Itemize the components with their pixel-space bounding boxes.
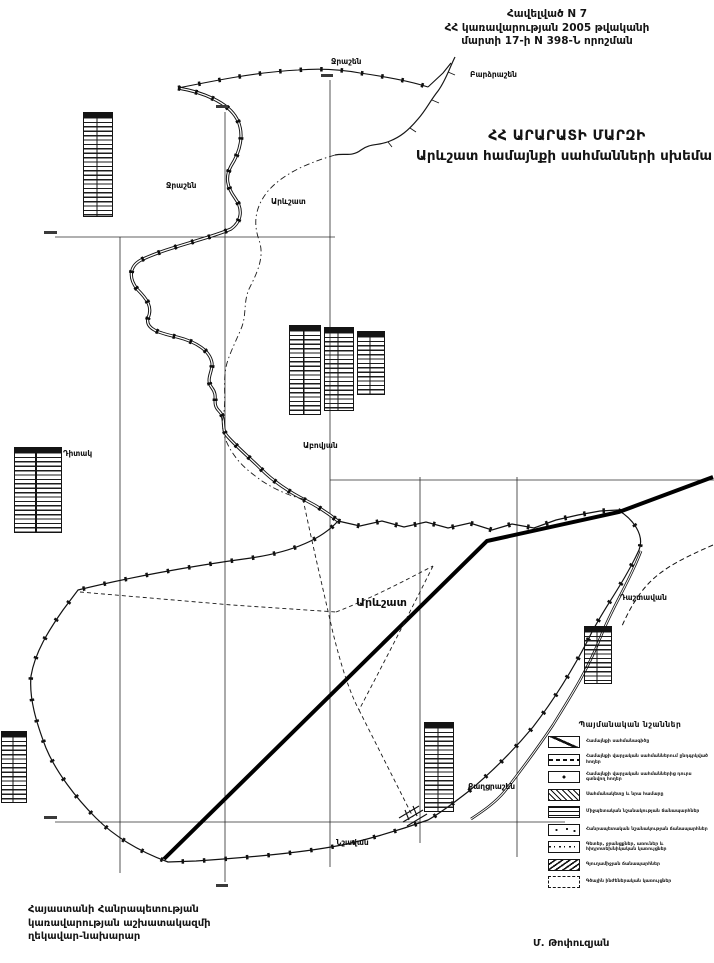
republic-road-swatch	[548, 824, 580, 836]
rivers-canals-swatch	[548, 841, 580, 853]
coordinate-table-block	[424, 722, 454, 812]
legend-item: Սահմանակետը և նրա համարը	[548, 789, 712, 801]
map-document-page: Հավելված N 7 ՀՀ կառավարության 2005 թվակա…	[0, 0, 714, 963]
map-label-jrashen-north: Ջրաշեն	[331, 57, 361, 66]
coordinate-table-block	[584, 626, 612, 684]
map-label-arevshat-north: Արևշատ	[271, 197, 306, 206]
grid-tick-mark	[44, 231, 57, 234]
included-lands-swatch	[548, 754, 580, 766]
map-legend: Պայմանական նշաններ Համայնքի սահմանագիծը …	[548, 720, 712, 894]
map-label-abovyan: Աբովյան	[303, 441, 338, 450]
coordinate-table-block	[357, 331, 385, 395]
coordinate-table-block	[83, 112, 113, 217]
grid-tick-mark	[321, 74, 333, 77]
outside-lands-swatch	[548, 771, 580, 783]
engineering-lines-swatch	[548, 876, 580, 888]
interstate-road-swatch	[548, 806, 580, 818]
map-title-community: Արևշատ համայնքի սահմանների սխեմա	[414, 148, 714, 164]
issuer-block: Հայաստանի Հանրապետության կառավարության ա…	[28, 903, 211, 944]
issuer-line: ղեկավար-նախարար	[28, 930, 211, 944]
issuer-line: Հայաստանի Հանրապետության	[28, 903, 211, 917]
boundary-north-edge	[178, 63, 451, 88]
village-road-swatch	[548, 859, 580, 871]
grid-tick-mark	[216, 105, 228, 108]
map-label-ditak: Դիտակ	[63, 449, 92, 458]
map-label-dashtavan: Դաշտավան	[620, 593, 667, 602]
decree-line: ՀՀ կառավարության 2005 թվականի	[380, 22, 714, 36]
legend-item: Համայնքի վարչական սահմաններում ընդգրկված…	[548, 754, 712, 766]
grid-tick-mark	[216, 884, 228, 887]
boundary-line-swatch	[548, 736, 580, 748]
coordinate-table-block	[324, 327, 354, 411]
signature-name: Մ. Թոփուզյան	[533, 938, 609, 949]
appendix-number: Հավելված N 7	[380, 8, 714, 22]
legend-item: Գետեր, ջրանցքներ, առուներ և հիդրոտեխնիկա…	[548, 841, 712, 853]
appendix-header: Հավելված N 7 ՀՀ կառավարության 2005 թվակա…	[380, 8, 714, 49]
map-title-region: ՀՀ ԱՐԱՐԱՏԻ ՄԱՐԶԻ	[420, 128, 714, 144]
grid-tick-mark	[44, 816, 57, 819]
coordinate-table-block	[289, 325, 321, 415]
map-label-arevshat-main: Արևշատ	[356, 596, 407, 609]
legend-item: Գծային ինժեներական կառույցներ	[548, 876, 712, 888]
legend-item: Համայնքի սահմանագիծը	[548, 736, 712, 748]
map-label-kaghtsrashen: Քաղցրաշեն	[468, 782, 515, 791]
map-label-bardzrashen: Բարձրաշեն	[470, 70, 517, 79]
legend-item: Միջպետական նշանակության ճանապարհներ	[548, 806, 712, 818]
map-label-nshavan: Նշավան	[336, 838, 369, 847]
legend-item: Գյուղամիջյան ճանապարհներ	[548, 859, 712, 871]
boundary-point-swatch	[548, 789, 580, 801]
coordinate-table-block	[1, 731, 27, 803]
bridge-symbol	[399, 806, 427, 826]
legend-item: Համայնքի վարչական սահմաններից դուրս գտնվ…	[548, 771, 712, 783]
decree-date-line: մարտի 17-ի N 398-Ն որոշման	[380, 35, 714, 49]
issuer-line: կառավարության աշխատակազմի	[28, 917, 211, 931]
legend-item: Հանրապետական նշանակության ճանապարհներ	[548, 824, 712, 836]
legend-title: Պայմանական նշաններ	[548, 720, 712, 729]
coordinate-table-block	[14, 447, 62, 533]
map-label-jrashen-west: Ջրաշեն	[166, 181, 196, 190]
